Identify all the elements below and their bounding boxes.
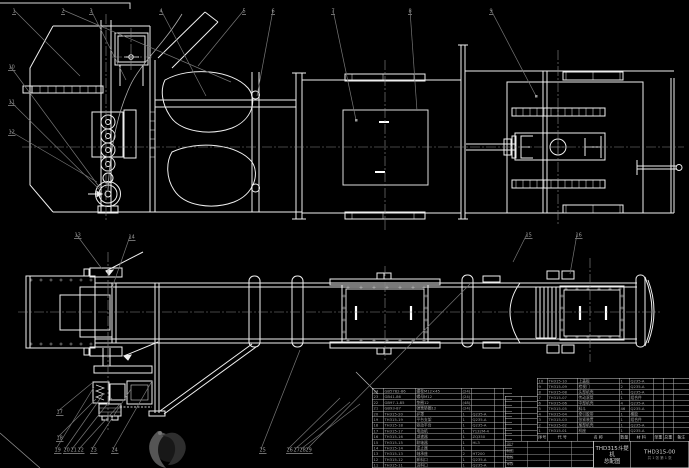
bom-cell: TH315-11 — [384, 463, 416, 468]
bom-cell: 1 — [462, 463, 472, 468]
item-balloon: 1 — [12, 9, 16, 15]
signature-cell — [550, 461, 572, 468]
item-balloon: 4 — [159, 9, 163, 15]
drawing-subtitle-text: 总配图 — [594, 458, 630, 465]
item-balloon: 22 — [77, 448, 84, 454]
signature-cell — [528, 461, 550, 468]
cad-drawing-canvas: 1234567891011121314151617181920212223242… — [0, 0, 689, 468]
corner-diagonal — [0, 433, 40, 468]
drawing-number: THD315-00 共 1 张 第 1 张 — [631, 442, 689, 468]
item-balloon: 9 — [489, 9, 493, 15]
bom-row: 序号代 号名 称数量材 料单重总重备注 — [538, 434, 689, 442]
bom-table-right: 10TH315-10上盖板1Q235-A9TH315-09检视门2Q235-A8… — [537, 378, 689, 433]
bom-cell — [495, 463, 504, 468]
leader-dots — [355, 95, 538, 122]
signature-grid: 设计制图校核审核 — [506, 442, 595, 468]
bom-header-row: 序号代 号名 称数量材 料单重总重备注 — [537, 433, 689, 441]
item-balloon: 29 — [305, 448, 312, 454]
item-balloon: 8 — [408, 9, 412, 15]
bom-table-left: 24GB5782-86螺栓M12×45(24)23GB41-86螺母M12(24… — [372, 388, 512, 468]
leader-lines — [10, 10, 577, 449]
item-balloon: 24 — [111, 448, 118, 454]
bom-cell: Q235-A — [472, 463, 495, 468]
item-balloon: 23 — [90, 448, 97, 454]
item-balloon: 3 — [89, 9, 93, 15]
item-balloon: 2 — [61, 9, 65, 15]
centerlines — [18, 14, 684, 430]
bom-cell: 材 料 — [630, 434, 654, 442]
revision-strip — [505, 396, 537, 441]
bom-cell: 备注 — [674, 434, 689, 442]
bom-cell: 总重 — [664, 434, 674, 442]
item-balloon: 19 — [54, 448, 61, 454]
sheet-note: 共 1 张 第 1 张 — [631, 456, 689, 461]
item-balloon: 13 — [74, 233, 81, 239]
watermark-logo — [149, 431, 186, 468]
item-balloon: 7 — [331, 9, 335, 15]
bom-row: 11TH315-11进料口1Q235-A — [373, 463, 513, 468]
item-balloon: 15 — [525, 233, 532, 239]
item-balloon: 6 — [271, 9, 275, 15]
bom-cell: 单重 — [654, 434, 664, 442]
item-balloon: 18 — [56, 436, 63, 442]
drawing-number-text: THD315-00 — [631, 449, 689, 456]
item-balloon: 25 — [259, 448, 266, 454]
signature-label: 审核 — [506, 461, 528, 468]
item-balloon: 12 — [8, 130, 15, 136]
item-balloon: 11 — [8, 100, 15, 106]
item-balloon: 5 — [242, 9, 246, 15]
drawing-title-text: THD315斗提机 — [594, 445, 630, 458]
item-balloon: 14 — [128, 235, 135, 241]
bom-cell: 11 — [373, 463, 384, 468]
bom-cell: 代 号 — [548, 434, 578, 442]
signature-cell — [572, 461, 594, 468]
bom-cell: 进料口 — [416, 463, 462, 468]
drawing-title: THD315斗提机 总配图 — [594, 442, 631, 468]
side-view — [23, 12, 682, 219]
title-block: 设计制图校核审核 THD315斗提机 总配图 THD315-00 共 1 张 第… — [505, 441, 689, 468]
item-balloon: 10 — [8, 65, 15, 71]
bom-cell: 名 称 — [578, 434, 620, 442]
bom-cell: 数量 — [620, 434, 630, 442]
item-balloon: 16 — [575, 233, 582, 239]
item-balloon: 17 — [56, 410, 63, 416]
bom-cell: 序号 — [538, 434, 548, 442]
bolt-marks — [29, 72, 623, 346]
